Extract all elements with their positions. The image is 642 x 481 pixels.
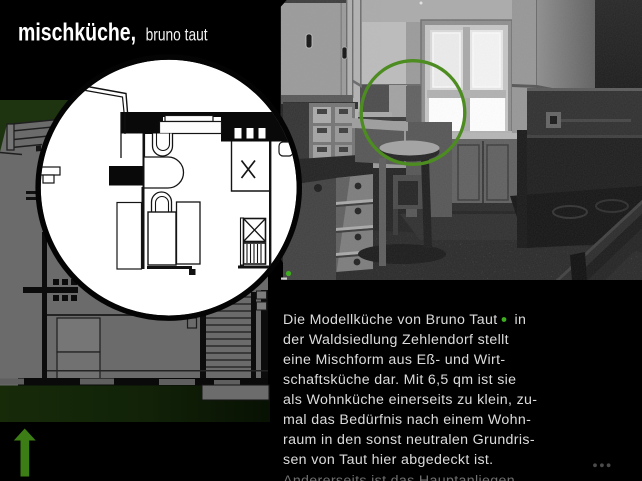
svg-text:mal das Bedürfnis nach einem W: mal das Bedürfnis nach einem Wohn- [283,412,531,428]
svg-text:mischküche,: mischküche, [18,18,136,46]
svg-text:in: in [515,312,527,328]
svg-text:als Wohnküche einerseits zu kl: als Wohnküche einerseits zu klein, zu- [283,392,537,408]
svg-text:bruno taut: bruno taut [146,25,208,45]
svg-text:raum in den sonst neutralen Gr: raum in den sonst neutralen Grundris- [283,432,535,448]
svg-text:sen von Taut hier abgedeckt is: sen von Taut hier abgedeckt ist. [283,452,493,468]
svg-text:der Waldsiedlung Zehlendorf st: der Waldsiedlung Zehlendorf stellt [283,332,509,348]
svg-text:eine Mischform aus Eß- und Wir: eine Mischform aus Eß- und Wirt- [283,352,506,368]
svg-text:schaftsküche dar. Mit 6,5 qm i: schaftsküche dar. Mit 6,5 qm ist sie [283,372,516,388]
svg-text:Andererseits ist das Hauptanli: Andererseits ist das Hauptanliegen [283,473,515,481]
svg-text:Die Modellküche von Bruno Taut: Die Modellküche von Bruno Taut [283,312,498,328]
